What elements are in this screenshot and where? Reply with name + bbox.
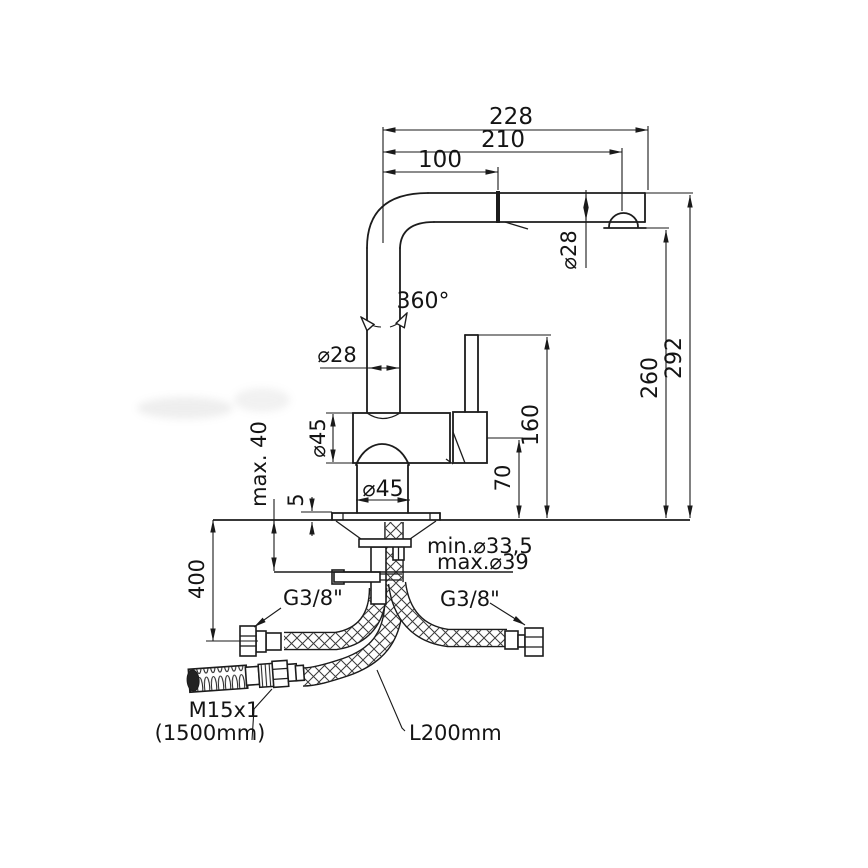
label-g38-left: G3/8" (283, 586, 343, 610)
ferrule (505, 631, 518, 649)
leader-g38-left (254, 608, 281, 627)
mixer-body (353, 413, 450, 463)
spout-outer-bend (367, 193, 428, 248)
rotation-arrow-right (390, 313, 407, 327)
label-360: 360° (397, 289, 450, 314)
m15-hex-nut (272, 660, 289, 687)
leader-l200 (377, 670, 405, 731)
label-g38-right: G3/8" (440, 587, 500, 611)
label-260: 260 (638, 357, 663, 399)
technical-drawing-svg: 228 210 100 ⌀28 360° ⌀28 ⌀45 max. 40 5 ⌀… (0, 0, 868, 868)
mounting-hardware (332, 521, 436, 604)
mounting-nut (334, 572, 380, 582)
rotation-arrow-left (361, 317, 381, 327)
label-100: 100 (418, 147, 462, 173)
hex-nut (525, 628, 543, 656)
label-hole-max: max.⌀39 (437, 550, 529, 574)
label-max-40: max. 40 (247, 421, 271, 507)
label-body-diameter: ⌀45 (306, 418, 330, 457)
label-210: 210 (481, 127, 525, 153)
spout-inner-bend (400, 222, 434, 248)
label-l200mm: L200mm (409, 721, 502, 745)
label-70: 70 (491, 465, 515, 492)
label-riser-diameter: ⌀28 (317, 343, 356, 367)
label-160: 160 (519, 404, 544, 446)
label-base-diameter: ⌀45 (362, 477, 403, 502)
watermark-smudge (137, 388, 290, 419)
label-400: 400 (185, 559, 209, 599)
label-spout-diameter: ⌀28 (557, 230, 581, 269)
label-5: 5 (284, 493, 308, 506)
aerator-dome (609, 213, 638, 227)
dimension-labels: 228 210 100 ⌀28 360° ⌀28 ⌀45 max. 40 5 ⌀… (155, 104, 687, 745)
support-washer (359, 539, 411, 547)
label-292: 292 (662, 337, 687, 379)
fitting-g38-right (505, 628, 543, 656)
ferrule (266, 633, 281, 650)
handle-housing (453, 412, 487, 463)
faucet-outline (332, 191, 646, 520)
label-1500mm: (1500mm) (155, 721, 266, 745)
drawing-canvas: 228 210 100 ⌀28 360° ⌀28 ⌀45 max. 40 5 ⌀… (0, 0, 868, 868)
body-bell (356, 444, 409, 465)
label-m15x1: M15x1 (189, 698, 260, 722)
spray-hose-connector (186, 659, 305, 693)
